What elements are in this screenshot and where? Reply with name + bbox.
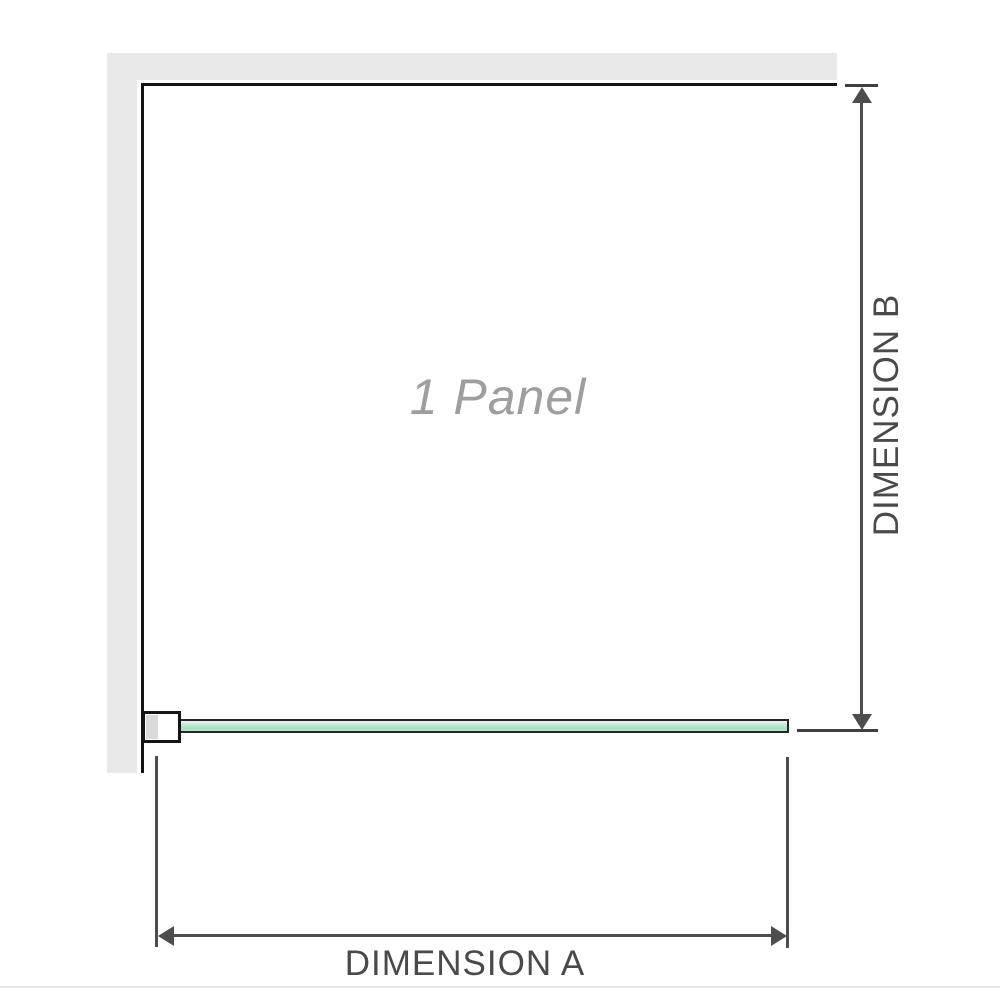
arrow-down-icon [852, 714, 872, 730]
arrow-right-icon [771, 926, 787, 946]
arrow-left-icon [158, 926, 174, 946]
glass-panel [155, 719, 789, 733]
wall-top [107, 53, 837, 80]
wall-left [107, 53, 137, 773]
panel-dimension-diagram: DIMENSION B DIMENSION A 1 Panel [0, 0, 1000, 1000]
page-divider [0, 986, 1000, 988]
dimension-b-line [860, 100, 863, 717]
dimension-a-extension-left [155, 756, 158, 947]
panel-count-label: 1 Panel [348, 368, 648, 426]
dimension-a-label: DIMENSION A [265, 944, 665, 984]
dimension-b-label: DIMENSION B [867, 205, 907, 625]
panel-outline-left [141, 83, 144, 773]
dimension-a-extension-right [786, 757, 789, 948]
wall-bracket-pad [146, 715, 158, 739]
panel-outline-top [141, 83, 837, 86]
arrow-up-icon [852, 87, 872, 103]
dimension-a-line [170, 934, 775, 937]
